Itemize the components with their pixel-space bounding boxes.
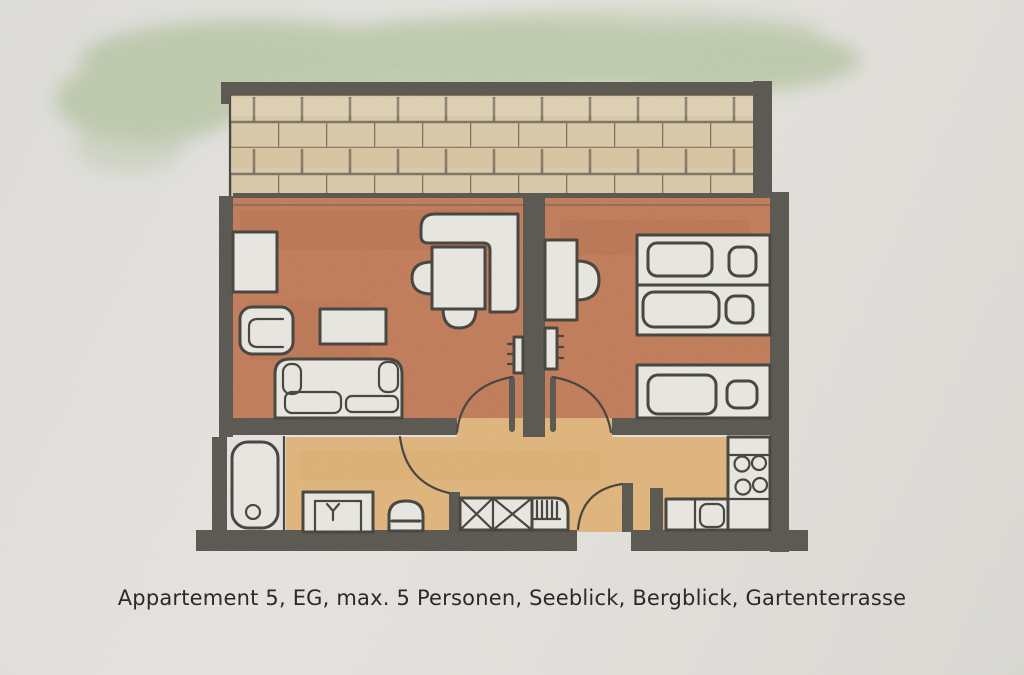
caption: Appartement 5, EG, max. 5 Personen, Seeb…	[0, 586, 1024, 618]
floor-plan-photo	[0, 0, 1024, 675]
floor-plan-drawing	[0, 0, 1024, 675]
paper-texture	[0, 0, 1024, 675]
